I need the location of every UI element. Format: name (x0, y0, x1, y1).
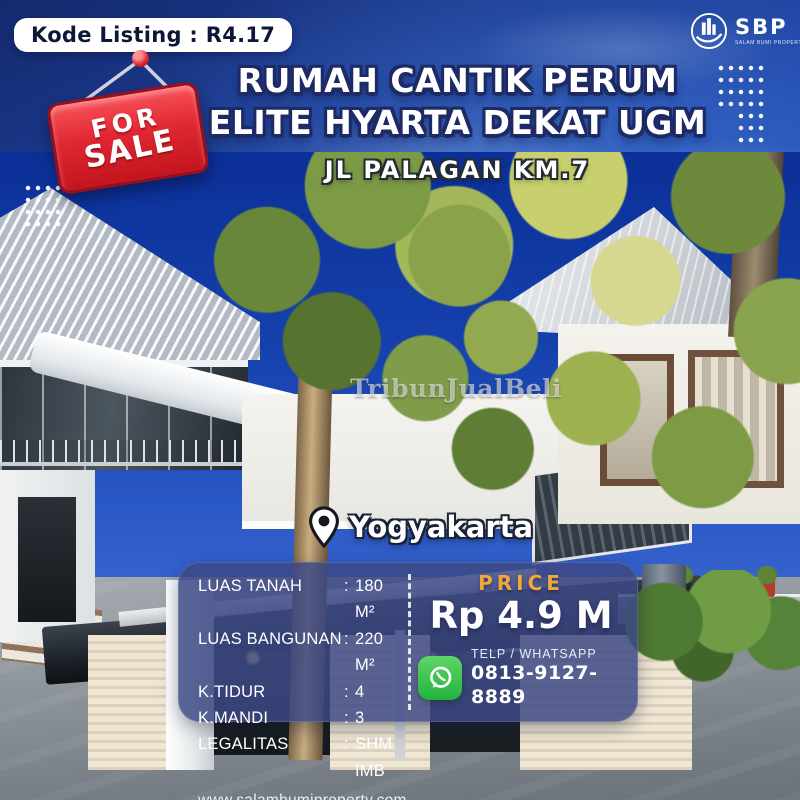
price-value: Rp 4.9 M (418, 595, 624, 638)
whatsapp-icon (418, 656, 462, 700)
spec-row-luas-tanah: LUAS TANAH : 180 M² (198, 573, 403, 626)
spec-value: 220 M² (355, 626, 403, 679)
price-label: PRICE (418, 571, 624, 595)
contact-row: TELP / WHATSAPP 0813-9127-8889 (418, 647, 624, 710)
spec-row-kamar-tidur: K.TIDUR : 4 (198, 679, 403, 705)
photo-watermark: TribunJualBeli (350, 374, 562, 403)
spec-value: SHM IMB (355, 731, 403, 784)
spec-value: 180 M² (355, 573, 403, 626)
map-pin-icon (308, 506, 340, 548)
website-url: www.salambumiproperty.com (198, 792, 403, 800)
spec-row-luas-bangunan: LUAS BANGUNAN : 220 M² (198, 626, 403, 679)
company-logo-text: SBP SALAM BUMI PROPERTY (735, 17, 800, 46)
spec-label: K.MANDI (198, 705, 344, 731)
details-panel: LUAS TANAH : 180 M² LUAS BANGUNAN : 220 … (178, 562, 638, 722)
contact-phone-number: 0813-9127-8889 (471, 662, 624, 710)
company-name: SBP (735, 17, 800, 38)
price-column: PRICE Rp 4.9 M TELP / WHATSAPP 0813-9127… (418, 571, 624, 710)
specs-column: LUAS TANAH : 180 M² LUAS BANGUNAN : 220 … (198, 573, 403, 800)
spec-label: LUAS BANGUNAN (198, 626, 344, 679)
contact-method: TELP / WHATSAPP (471, 647, 624, 663)
dot-grid-top-right-step (736, 110, 766, 148)
photo-left-house-door (18, 497, 76, 622)
spec-row-legalitas: LEGALITAS : SHM IMB (198, 731, 403, 784)
property-listing-poster: Kode Listing : R4.17 SBP SALAM BUMI PROP… (0, 0, 800, 800)
whatsapp-glyph (423, 661, 457, 695)
location-row: Yogyakarta (308, 506, 533, 548)
spec-label: LEGALITAS (198, 731, 344, 784)
spec-separator: : (344, 705, 355, 731)
spec-separator: : (344, 626, 355, 679)
title-line-1: RUMAH CANTIK PERUM (175, 60, 740, 102)
red-pushpin-icon (132, 50, 149, 67)
spec-separator: : (344, 679, 355, 705)
contact-text: TELP / WHATSAPP 0813-9127-8889 (471, 647, 624, 710)
spec-value: 3 (355, 705, 403, 731)
photo-bottom-right-bushes (615, 570, 800, 685)
listing-address: JL PALAGAN KM.7 (175, 156, 740, 184)
panel-dashed-divider (408, 574, 411, 710)
photo-right-foliage (392, 152, 800, 558)
listing-title: RUMAH CANTIK PERUM ELITE HYARTA DEKAT UG… (175, 60, 740, 143)
spec-separator: : (344, 573, 355, 626)
title-line-2: ELITE HYARTA DEKAT UGM (175, 102, 740, 144)
spec-row-kamar-mandi: K.MANDI : 3 (198, 705, 403, 731)
listing-code-badge: Kode Listing : R4.17 (14, 18, 292, 52)
spec-label: K.TIDUR (198, 679, 344, 705)
spec-separator: : (344, 731, 355, 784)
spec-value: 4 (355, 679, 403, 705)
company-tagline: SALAM BUMI PROPERTY (735, 41, 800, 46)
spec-label: LUAS TANAH (198, 573, 344, 626)
company-logo: SBP SALAM BUMI PROPERTY (690, 12, 800, 50)
sbp-building-emblem-icon (690, 12, 728, 50)
location-city: Yogyakarta (349, 510, 533, 544)
